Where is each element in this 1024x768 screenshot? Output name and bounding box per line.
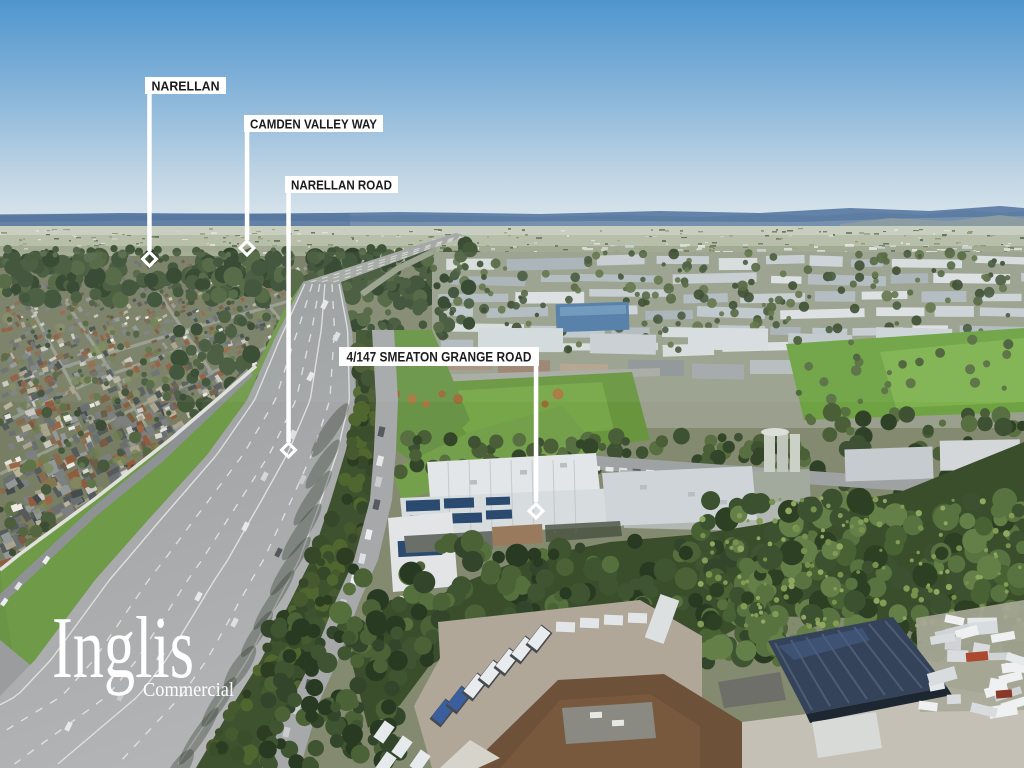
svg-text:Commercial: Commercial	[143, 679, 234, 701]
svg-text:NARELLAN ROAD: NARELLAN ROAD	[291, 177, 392, 192]
svg-text:4/147 SMEATON GRANGE ROAD: 4/147 SMEATON GRANGE ROAD	[347, 349, 532, 364]
svg-text:NARELLAN: NARELLAN	[152, 78, 220, 93]
svg-text:CAMDEN VALLEY WAY: CAMDEN VALLEY WAY	[250, 116, 377, 131]
